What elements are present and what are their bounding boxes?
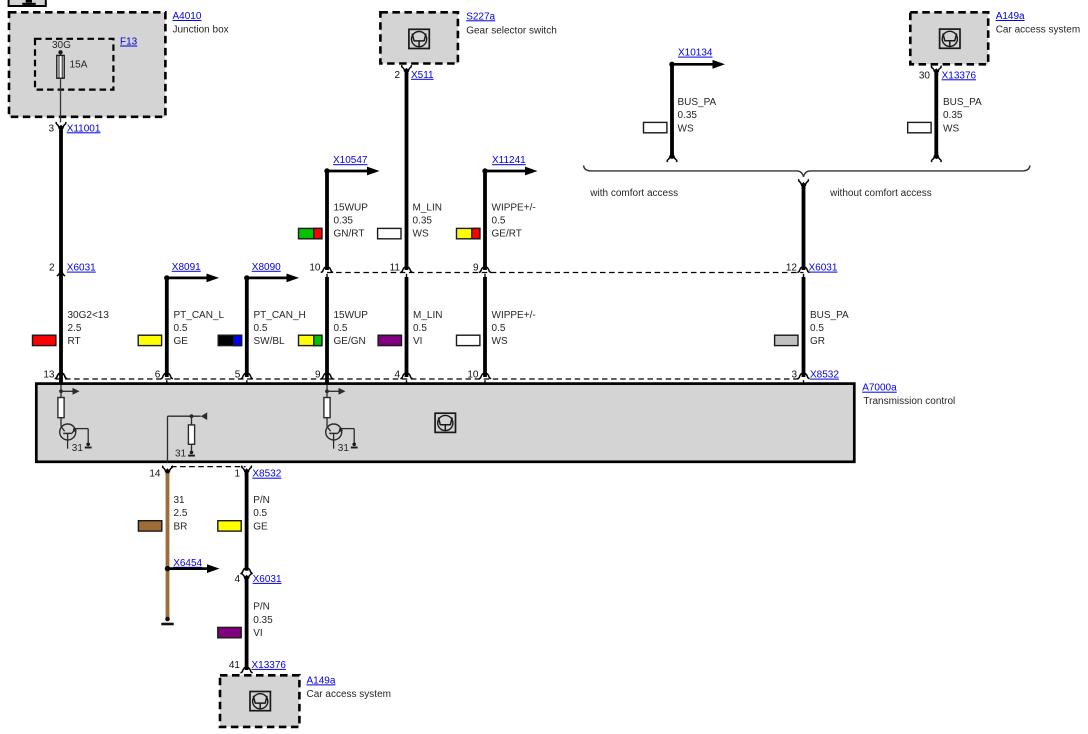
svg-text:4: 4 bbox=[394, 370, 400, 381]
svg-text:4: 4 bbox=[234, 574, 240, 585]
svg-text:VI: VI bbox=[253, 628, 262, 639]
svg-text:WIPPE+/-: WIPPE+/- bbox=[492, 310, 536, 321]
svg-text:0.5: 0.5 bbox=[413, 323, 427, 334]
svg-text:S227a: S227a bbox=[466, 11, 495, 22]
svg-text:0.5: 0.5 bbox=[492, 323, 506, 334]
svg-text:P/N: P/N bbox=[253, 495, 270, 506]
svg-text:0.35: 0.35 bbox=[943, 110, 963, 121]
svg-text:13: 13 bbox=[43, 370, 55, 381]
svg-text:P/N: P/N bbox=[253, 602, 270, 613]
svg-text:GR: GR bbox=[810, 336, 825, 347]
svg-text:WIPPE+/-: WIPPE+/- bbox=[492, 202, 536, 213]
svg-text:6: 6 bbox=[155, 370, 161, 381]
svg-text:GE/GN: GE/GN bbox=[334, 336, 366, 347]
svg-text:9: 9 bbox=[473, 263, 479, 274]
svg-text:PT_CAN_L: PT_CAN_L bbox=[174, 310, 225, 321]
svg-text:X8532: X8532 bbox=[252, 469, 281, 480]
svg-text:31: 31 bbox=[174, 495, 186, 506]
svg-text:3: 3 bbox=[791, 370, 797, 381]
svg-text:A149a: A149a bbox=[307, 675, 336, 686]
svg-text:2: 2 bbox=[394, 70, 400, 81]
svg-text:2.5: 2.5 bbox=[68, 323, 82, 334]
svg-text:12: 12 bbox=[786, 263, 798, 274]
svg-text:1: 1 bbox=[234, 469, 240, 480]
svg-text:with comfort access: with comfort access bbox=[589, 188, 678, 199]
svg-text:X6031: X6031 bbox=[67, 263, 96, 274]
svg-text:15A: 15A bbox=[70, 59, 88, 70]
svg-text:14: 14 bbox=[149, 469, 161, 480]
svg-text:X6031: X6031 bbox=[253, 574, 282, 585]
svg-text:GE/RT: GE/RT bbox=[492, 229, 522, 240]
svg-text:WS: WS bbox=[413, 229, 429, 240]
svg-text:31: 31 bbox=[338, 443, 350, 454]
svg-text:2.5: 2.5 bbox=[174, 508, 188, 519]
svg-text:F13: F13 bbox=[120, 37, 138, 48]
svg-text:X8090: X8090 bbox=[252, 262, 281, 273]
svg-text:0.35: 0.35 bbox=[413, 216, 433, 227]
svg-text:WS: WS bbox=[943, 123, 959, 134]
svg-text:X10547: X10547 bbox=[333, 155, 368, 166]
svg-text:A4010: A4010 bbox=[173, 11, 202, 22]
svg-text:0.5: 0.5 bbox=[810, 323, 824, 334]
svg-text:X8532: X8532 bbox=[810, 370, 839, 381]
svg-text:M_LIN: M_LIN bbox=[413, 310, 442, 321]
svg-text:2: 2 bbox=[49, 263, 55, 274]
svg-text:30G: 30G bbox=[52, 40, 71, 51]
svg-text:BUS_PA: BUS_PA bbox=[678, 97, 717, 108]
svg-text:9: 9 bbox=[315, 370, 321, 381]
svg-text:0.5: 0.5 bbox=[174, 323, 188, 334]
svg-text:WS: WS bbox=[492, 336, 508, 347]
svg-text:31: 31 bbox=[175, 448, 187, 459]
svg-text:X13376: X13376 bbox=[252, 660, 287, 671]
svg-text:GE: GE bbox=[253, 521, 268, 532]
svg-text:BUS_PA: BUS_PA bbox=[943, 97, 982, 108]
svg-text:41: 41 bbox=[229, 660, 241, 671]
svg-text:M_LIN: M_LIN bbox=[413, 202, 442, 213]
svg-text:5: 5 bbox=[235, 370, 241, 381]
svg-text:3: 3 bbox=[48, 123, 54, 134]
svg-text:Car access system: Car access system bbox=[307, 689, 391, 700]
svg-text:30G2<13: 30G2<13 bbox=[68, 310, 110, 321]
svg-text:0.5: 0.5 bbox=[254, 323, 268, 334]
svg-text:0.35: 0.35 bbox=[253, 615, 273, 626]
svg-text:Car access system: Car access system bbox=[996, 24, 1080, 35]
svg-text:BR: BR bbox=[174, 521, 188, 532]
svg-text:10: 10 bbox=[467, 370, 479, 381]
svg-text:RT: RT bbox=[68, 336, 81, 347]
svg-text:BUS_PA: BUS_PA bbox=[810, 310, 849, 321]
svg-text:11: 11 bbox=[390, 263, 401, 274]
svg-text:X11241: X11241 bbox=[492, 155, 526, 166]
svg-text:Gear selector switch: Gear selector switch bbox=[466, 26, 557, 37]
svg-text:10: 10 bbox=[309, 263, 321, 274]
svg-text:Junction box: Junction box bbox=[173, 24, 229, 35]
svg-text:without comfort access: without comfort access bbox=[829, 188, 932, 199]
svg-text:X13376: X13376 bbox=[942, 70, 977, 81]
svg-text:X11001: X11001 bbox=[67, 123, 101, 134]
svg-text:31: 31 bbox=[72, 443, 84, 454]
svg-text:X511: X511 bbox=[411, 70, 434, 81]
svg-text:WS: WS bbox=[678, 123, 694, 134]
svg-text:15WUP: 15WUP bbox=[334, 310, 369, 321]
svg-text:15WUP: 15WUP bbox=[334, 202, 369, 213]
svg-text:GN/RT: GN/RT bbox=[334, 229, 365, 240]
svg-text:VI: VI bbox=[413, 336, 422, 347]
svg-text:SW/BL: SW/BL bbox=[254, 336, 286, 347]
svg-text:0.5: 0.5 bbox=[492, 216, 506, 227]
svg-text:Transmission control: Transmission control bbox=[863, 396, 955, 407]
svg-text:0.5: 0.5 bbox=[253, 508, 267, 519]
svg-text:A149a: A149a bbox=[996, 11, 1025, 22]
svg-text:0.5: 0.5 bbox=[334, 323, 348, 334]
svg-text:A7000a: A7000a bbox=[862, 383, 897, 394]
svg-text:X8091: X8091 bbox=[172, 262, 201, 273]
svg-text:PT_CAN_H: PT_CAN_H bbox=[254, 310, 306, 321]
svg-text:0.35: 0.35 bbox=[678, 110, 698, 121]
svg-text:X6454: X6454 bbox=[173, 558, 202, 569]
svg-text:GE: GE bbox=[174, 336, 189, 347]
svg-text:0.35: 0.35 bbox=[334, 216, 354, 227]
svg-text:X10134: X10134 bbox=[678, 48, 713, 59]
svg-text:X6031: X6031 bbox=[809, 263, 838, 274]
svg-text:30: 30 bbox=[919, 70, 931, 81]
